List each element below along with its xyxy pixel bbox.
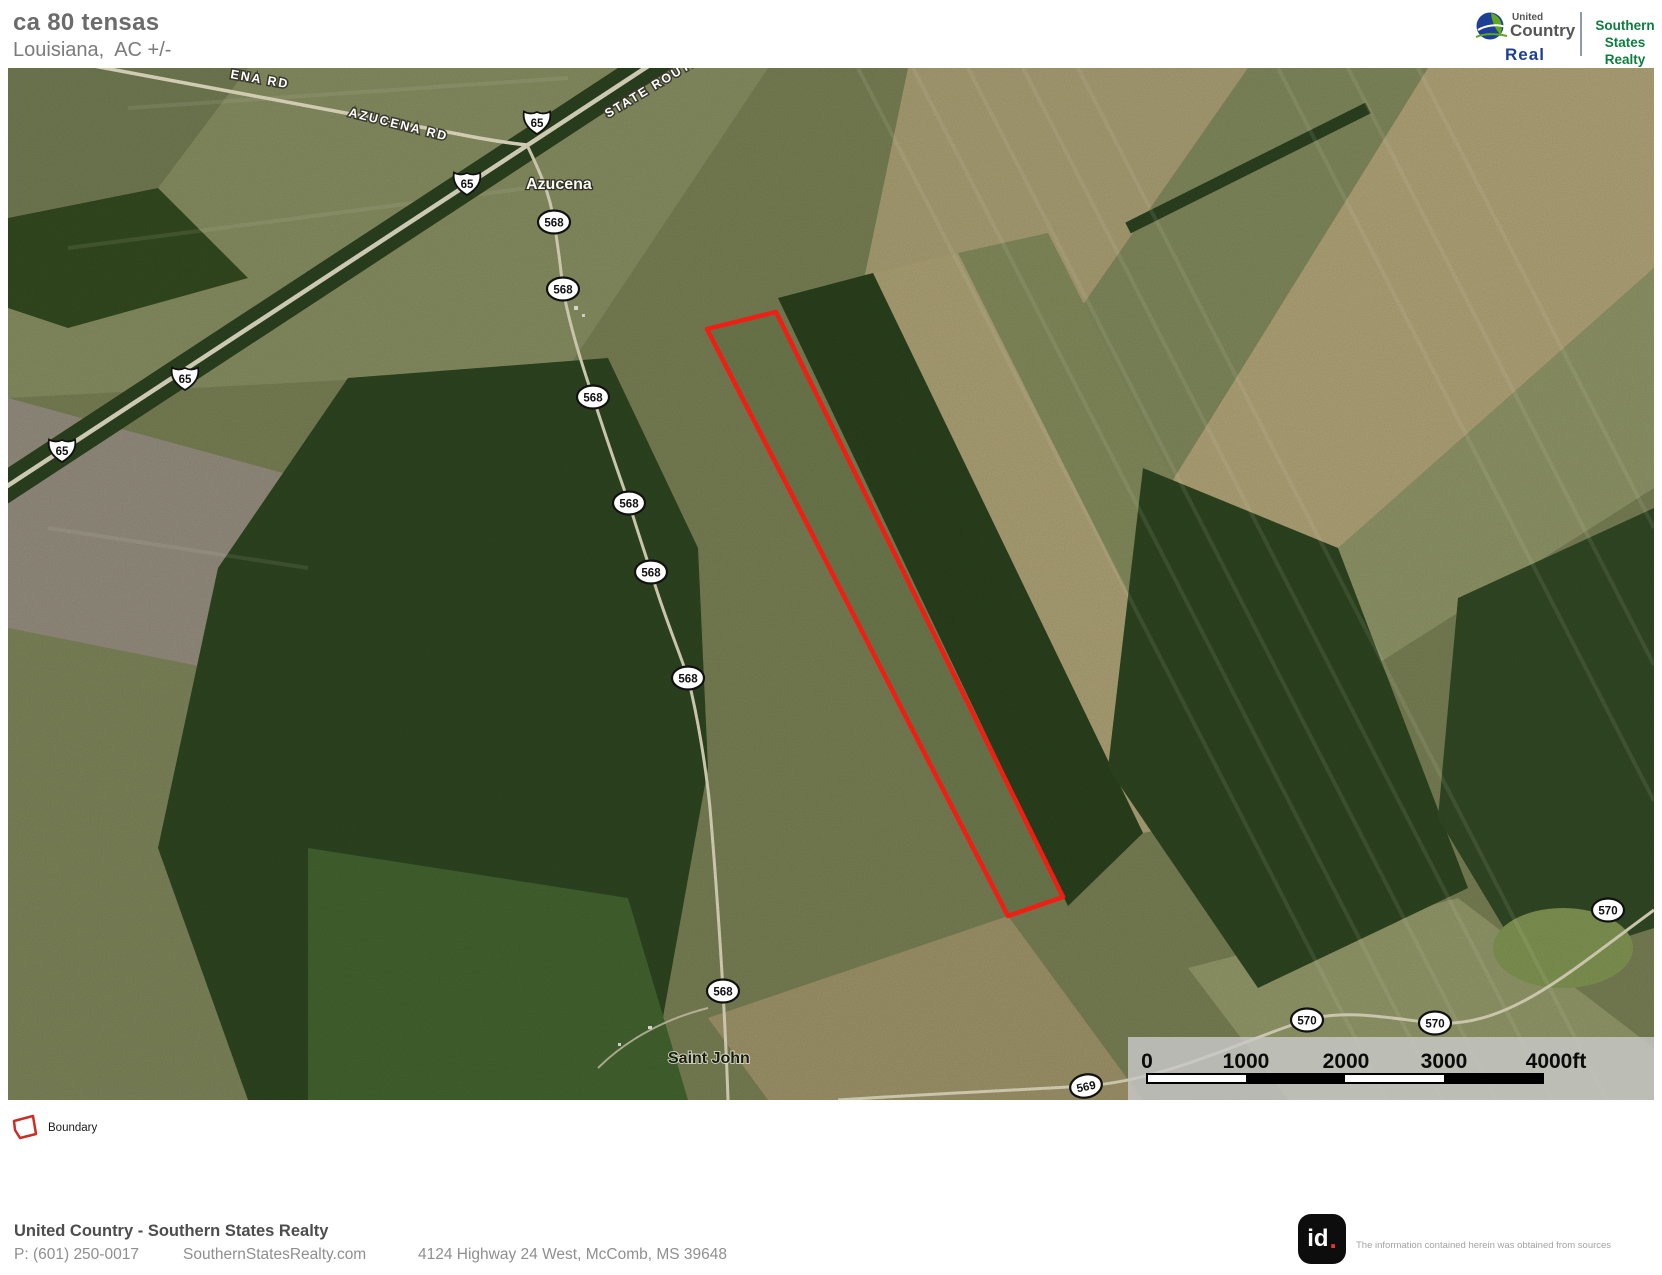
la568-shield: 568: [707, 980, 739, 1003]
la570-shield: 570: [1419, 1012, 1451, 1035]
scale-tick-2000: 2000: [1323, 1050, 1370, 1073]
svg-text:570: 570: [1425, 1019, 1444, 1031]
svg-text:568: 568: [583, 393, 603, 405]
svg-text:65: 65: [531, 118, 544, 130]
disclaimer-line1: The information contained herein was obt…: [1356, 1240, 1654, 1253]
town-label-saint-john: Saint John: [668, 1050, 750, 1067]
scale-tick-1000: 1000: [1223, 1050, 1270, 1073]
la568-shield: 568: [635, 561, 667, 584]
svg-text:65: 65: [461, 179, 474, 191]
svg-text:568: 568: [619, 499, 639, 511]
satellite-map: ENA RD AZUCENA RD STATE ROUTE Azucena Sa…: [8, 68, 1654, 1100]
listing-flyer: ca 80 tensas Louisiana, AC +/- United Co…: [0, 0, 1662, 1275]
boundary-legend-label: Boundary: [48, 1122, 97, 1134]
svg-text:568: 568: [641, 568, 661, 580]
land-id-logo-text: id: [1307, 1225, 1328, 1253]
united-country-word-country: Country: [1510, 21, 1575, 41]
ssr-line1: Southern: [1588, 17, 1662, 34]
svg-text:568: 568: [678, 674, 698, 686]
southern-states-realty-logo: Southern States Realty: [1588, 17, 1662, 68]
brand-divider: [1580, 12, 1582, 56]
disclaimer-text: The information contained herein was obt…: [1356, 1215, 1654, 1275]
footer-company-name: United Country - Southern States Realty: [14, 1222, 328, 1241]
page-subtitle: Louisiana, AC +/-: [13, 39, 171, 62]
svg-text:65: 65: [56, 446, 69, 458]
la568-shield: 568: [577, 386, 609, 409]
svg-text:568: 568: [553, 285, 573, 297]
satellite-grain: [8, 68, 1654, 1100]
svg-text:568: 568: [713, 987, 733, 999]
la568-shield: 568: [538, 211, 570, 234]
scale-tick-0: 0: [1141, 1050, 1153, 1073]
la568-shield: 568: [613, 492, 645, 515]
boundary-legend-icon: [10, 1112, 40, 1142]
footer-address: 4124 Highway 24 West, McComb, MS 39648: [418, 1246, 727, 1264]
land-id-logo: id.: [1298, 1214, 1346, 1264]
land-id-logo-dot: .: [1330, 1224, 1337, 1255]
svg-text:570: 570: [1598, 906, 1617, 918]
town-label-azucena: Azucena: [526, 176, 592, 193]
la570-shield: 570: [1291, 1009, 1323, 1032]
svg-text:65: 65: [179, 374, 192, 386]
la568-shield: 568: [547, 278, 579, 301]
scale-tick-3000: 3000: [1421, 1050, 1468, 1073]
scale-tick-4000ft: 4000ft: [1526, 1050, 1587, 1073]
svg-text:568: 568: [544, 218, 564, 230]
united-country-globe-icon: [1474, 10, 1508, 44]
scale-bar: 0 1000 2000 3000 4000ft: [1128, 1037, 1654, 1100]
ssr-line2: States Realty: [1588, 34, 1662, 68]
svg-text:570: 570: [1297, 1016, 1316, 1028]
la568-shield: 568: [672, 667, 704, 690]
footer-website-link[interactable]: SouthernStatesRealty.com: [183, 1246, 366, 1264]
page-title: ca 80 tensas: [13, 9, 159, 37]
la570-shield: 570: [1592, 899, 1624, 922]
footer-phone: P: (601) 250-0017: [14, 1246, 139, 1264]
